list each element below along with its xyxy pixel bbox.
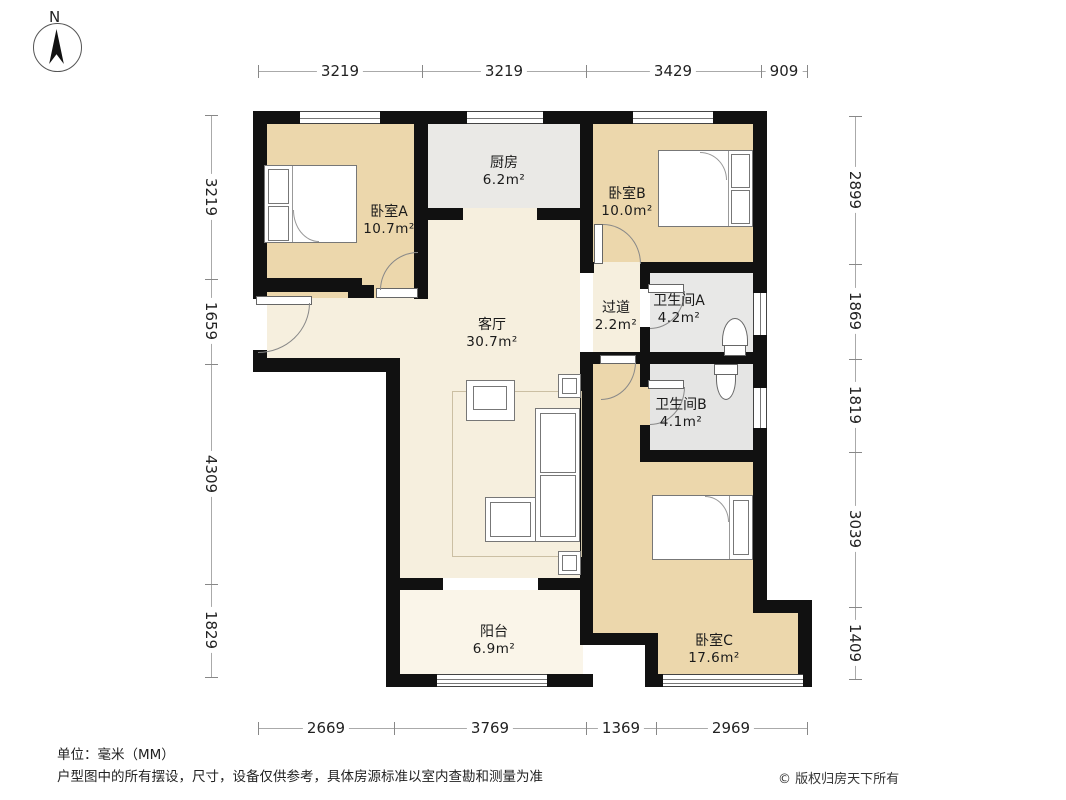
unit-note: 单位：毫米（MM） bbox=[57, 743, 175, 763]
window bbox=[753, 293, 767, 335]
room-label-living: 客厅 30.7m² bbox=[433, 317, 551, 351]
side-table-top bbox=[562, 555, 577, 571]
room-name: 卫生间A bbox=[620, 293, 738, 310]
dim-bottom-1: 2669 bbox=[303, 719, 349, 737]
room-name: 客厅 bbox=[433, 317, 551, 334]
wall bbox=[386, 590, 400, 687]
tick bbox=[849, 264, 862, 265]
tick bbox=[205, 584, 218, 585]
room-label-bedroom-a: 卧室A 10.7m² bbox=[330, 204, 448, 238]
room-label-bedroom-c: 卧室C 17.6m² bbox=[655, 633, 773, 667]
tick bbox=[849, 359, 862, 360]
room-name: 卧室C bbox=[655, 633, 773, 650]
copyright-text: © 版权归房天下所有 bbox=[778, 768, 899, 787]
dim-left-4: 1829 bbox=[202, 607, 220, 653]
dim-top-4: 909 bbox=[766, 62, 803, 80]
dim-bottom-2: 3769 bbox=[467, 719, 513, 737]
dim-right-1: 2899 bbox=[846, 167, 864, 213]
wall bbox=[253, 358, 400, 372]
bed-line bbox=[729, 496, 730, 559]
tick bbox=[205, 364, 218, 365]
dim-right-5: 1409 bbox=[846, 620, 864, 666]
room-label-kitchen: 厨房 6.2m² bbox=[445, 155, 563, 189]
wall bbox=[580, 262, 594, 273]
tick bbox=[205, 115, 218, 116]
room-label-bedroom-b: 卧室B 10.0m² bbox=[568, 186, 686, 220]
room-area: 17.6m² bbox=[655, 650, 773, 667]
tick bbox=[807, 65, 808, 78]
window bbox=[300, 111, 380, 124]
dim-left-3: 4309 bbox=[202, 451, 220, 497]
tick bbox=[849, 452, 862, 453]
tick bbox=[656, 722, 657, 735]
room-area: 30.7m² bbox=[433, 334, 551, 351]
room-name: 阳台 bbox=[435, 624, 553, 641]
dim-right-2: 1869 bbox=[846, 288, 864, 334]
room-area: 10.7m² bbox=[330, 221, 448, 238]
room-label-bathroom-b: 卫生间B 4.1m² bbox=[622, 397, 740, 431]
tick bbox=[258, 65, 259, 78]
tick bbox=[807, 722, 808, 735]
tick bbox=[422, 65, 423, 78]
dim-bottom-3: 1369 bbox=[598, 719, 644, 737]
window bbox=[437, 674, 547, 687]
pillow bbox=[731, 190, 750, 224]
dim-left-2: 1659 bbox=[202, 298, 220, 344]
tick bbox=[258, 722, 259, 735]
wall bbox=[547, 674, 593, 687]
toilet-tank bbox=[724, 345, 746, 356]
wall bbox=[586, 633, 658, 645]
window bbox=[663, 674, 803, 687]
wall bbox=[386, 372, 400, 590]
tick bbox=[761, 65, 762, 78]
room-area: 10.0m² bbox=[568, 203, 686, 220]
tick bbox=[849, 116, 862, 117]
tick bbox=[205, 677, 218, 678]
tick bbox=[849, 607, 862, 608]
dim-right-3: 1819 bbox=[846, 382, 864, 428]
dim-left-1: 3219 bbox=[202, 174, 220, 220]
pillow bbox=[268, 206, 289, 241]
bed-line bbox=[292, 166, 293, 242]
window bbox=[753, 388, 767, 428]
side-table-top bbox=[562, 378, 577, 394]
room-label-bathroom-a: 卫生间A 4.2m² bbox=[620, 293, 738, 327]
wall bbox=[253, 278, 362, 292]
bed-line bbox=[728, 151, 729, 226]
dim-top-3: 3429 bbox=[650, 62, 696, 80]
pillow bbox=[268, 169, 289, 204]
window bbox=[467, 111, 543, 124]
tick bbox=[586, 65, 587, 78]
sofa-cushion bbox=[540, 413, 576, 473]
dim-right-4: 3039 bbox=[846, 506, 864, 552]
pillow bbox=[731, 154, 750, 188]
wall bbox=[348, 285, 374, 298]
armchair-cushion bbox=[473, 386, 507, 410]
bedroom-b-door-leaf bbox=[594, 224, 603, 264]
room-area: 6.2m² bbox=[445, 172, 563, 189]
room-name: 卫生间B bbox=[622, 397, 740, 414]
room-name: 卧室B bbox=[568, 186, 686, 203]
tick bbox=[849, 679, 862, 680]
window bbox=[633, 111, 713, 124]
room-area: 6.9m² bbox=[435, 641, 553, 658]
wall bbox=[386, 578, 443, 590]
compass-north-label: N bbox=[49, 8, 60, 26]
dim-top-2: 3219 bbox=[481, 62, 527, 80]
sofa-cushion bbox=[490, 502, 531, 537]
wall bbox=[753, 600, 812, 613]
wall bbox=[395, 674, 437, 687]
sofa-cushion bbox=[540, 475, 576, 537]
wall bbox=[753, 111, 767, 604]
floor-plan-page: N bbox=[0, 0, 1066, 800]
dim-top-1: 3219 bbox=[317, 62, 363, 80]
room-area: 4.1m² bbox=[622, 414, 740, 431]
room-area: 4.2m² bbox=[620, 310, 738, 327]
dim-bottom-4: 2969 bbox=[708, 719, 754, 737]
room-name: 卧室A bbox=[330, 204, 448, 221]
disclaimer-text: 户型图中的所有摆设，尺寸，设备仅供参考，具体房源标准以室内查勘和测量为准 bbox=[57, 765, 543, 785]
wall bbox=[640, 450, 767, 462]
tick bbox=[394, 722, 395, 735]
tick bbox=[205, 279, 218, 280]
wall bbox=[640, 262, 755, 273]
room-label-balcony: 阳台 6.9m² bbox=[435, 624, 553, 658]
room-name: 厨房 bbox=[445, 155, 563, 172]
pillow bbox=[733, 500, 749, 555]
tick bbox=[586, 722, 587, 735]
